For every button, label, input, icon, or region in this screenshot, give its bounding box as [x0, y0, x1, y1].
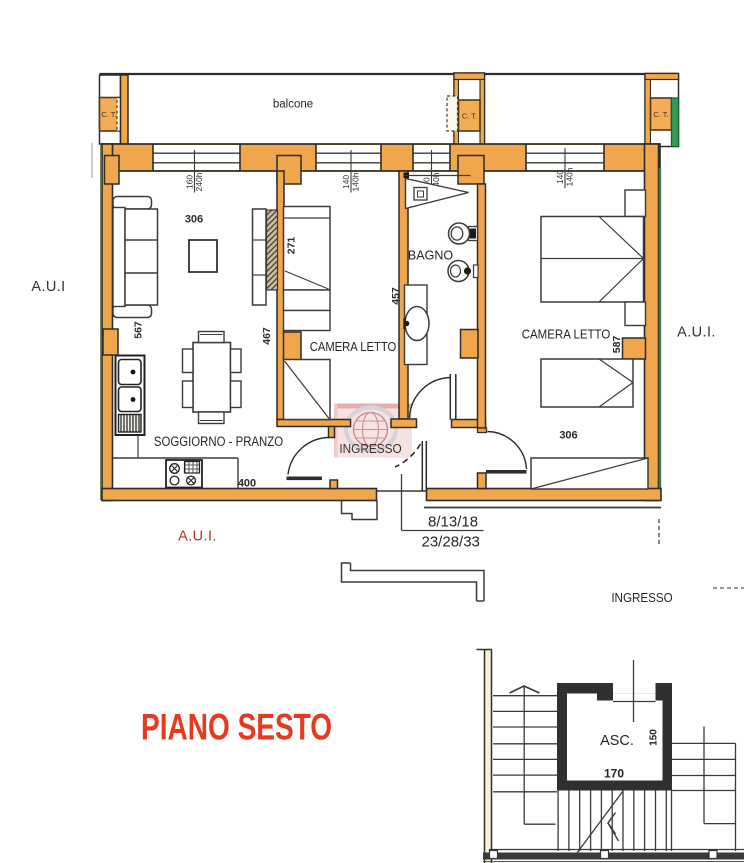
svg-text:587: 587 — [611, 336, 623, 354]
svg-text:240h: 240h — [194, 172, 204, 191]
svg-text:140h: 140h — [564, 167, 574, 186]
svg-text:400: 400 — [238, 478, 256, 490]
svg-text:306: 306 — [559, 430, 577, 442]
svg-text:balcone: balcone — [273, 99, 313, 111]
svg-text:271: 271 — [285, 237, 297, 255]
svg-text:306: 306 — [185, 214, 203, 226]
svg-text:A.U.I: A.U.I — [31, 279, 65, 295]
svg-text:170: 170 — [604, 767, 624, 781]
svg-text:467: 467 — [261, 327, 273, 345]
svg-text:ASC.: ASC. — [600, 733, 634, 749]
svg-text:160: 160 — [184, 175, 194, 189]
svg-text:CAMERA LETTO: CAMERA LETTO — [522, 327, 611, 342]
svg-text:A.U.I.: A.U.I. — [677, 325, 716, 341]
svg-text:CAMERA LETTO: CAMERA LETTO — [310, 339, 397, 354]
svg-text:SOGGIORNO - PRANZO: SOGGIORNO - PRANZO — [154, 434, 283, 449]
svg-text:C. T.: C. T. — [653, 110, 668, 119]
svg-text:23/28/33: 23/28/33 — [422, 534, 480, 551]
svg-text:140: 140 — [341, 175, 351, 189]
svg-text:140: 140 — [555, 170, 565, 184]
svg-text:140h: 140h — [350, 172, 360, 191]
svg-text:INGRESSO: INGRESSO — [611, 591, 672, 605]
svg-text:PIANO SESTO: PIANO SESTO — [141, 706, 332, 748]
svg-text:A.U.I.: A.U.I. — [178, 529, 217, 545]
svg-text:C. T.: C. T. — [462, 112, 477, 121]
svg-text:C. T.: C. T. — [101, 110, 116, 119]
svg-text:457: 457 — [390, 287, 402, 305]
svg-text:BAGNO: BAGNO — [408, 249, 453, 263]
svg-text:INGRESSO: INGRESSO — [339, 441, 402, 456]
svg-text:8/13/18: 8/13/18 — [428, 514, 478, 531]
svg-text:567: 567 — [132, 321, 144, 339]
svg-text:150: 150 — [649, 729, 660, 746]
